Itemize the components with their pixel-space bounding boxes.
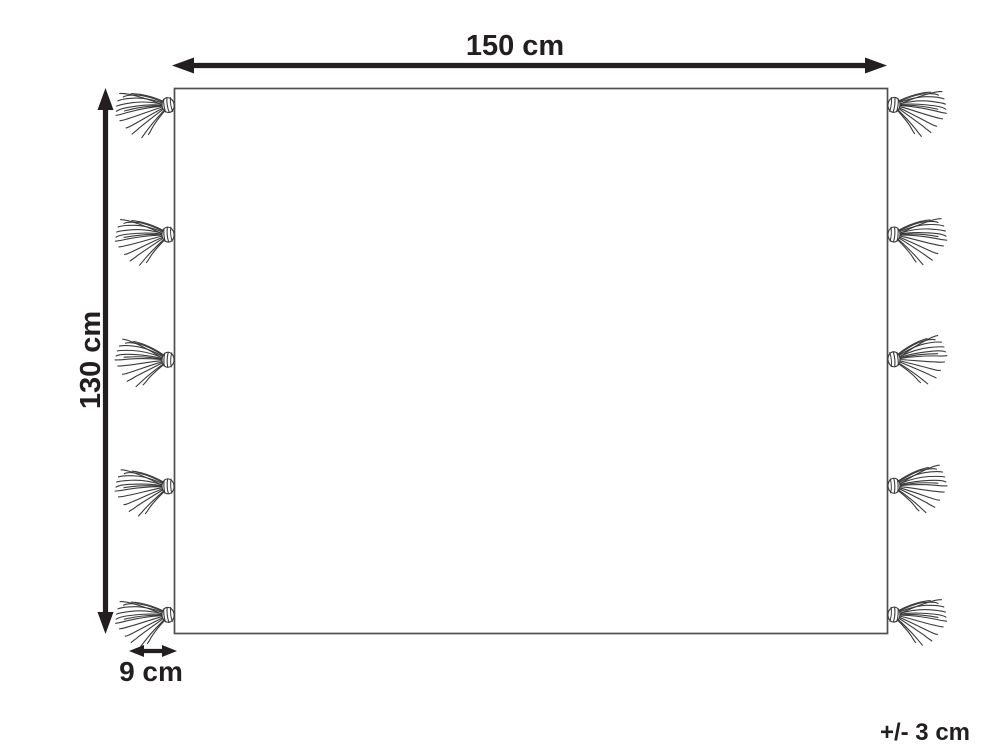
width-dimension-arrow: 150 cm (172, 30, 887, 74)
tassel-icon (885, 85, 949, 139)
tassel-icon (113, 85, 179, 141)
tolerance-label: +/- 3 cm (880, 719, 970, 746)
fringe-dimension-arrow: 9 cm (119, 645, 183, 687)
tassel-column-left (113, 85, 179, 649)
arrowhead-up-icon (98, 88, 114, 110)
arrowhead-right-icon (865, 58, 887, 74)
height-dimension-label: 130 cm (75, 311, 107, 409)
fringe-dimension-label: 9 cm (119, 656, 183, 687)
tassel-column-right (885, 85, 950, 647)
tassel-icon (114, 339, 175, 388)
tassel-icon (113, 595, 177, 649)
arrowhead-left-icon (172, 58, 194, 74)
tassel-icon (886, 595, 949, 647)
tassel-icon (886, 215, 948, 266)
arrowhead-down-icon (98, 612, 114, 634)
tassel-icon (887, 465, 948, 514)
tassel-icon (114, 467, 175, 517)
tassel-icon (886, 335, 950, 388)
rug-outline (175, 89, 888, 634)
diagram-canvas: 150 cm 130 cm 9 cm +/- 3 cm (0, 0, 1000, 750)
height-dimension-arrow: 130 cm (75, 88, 114, 634)
width-dimension-label: 150 cm (466, 30, 564, 62)
dimension-diagram: 150 cm 130 cm 9 cm +/- 3 cm (0, 0, 1000, 750)
tassel-icon (114, 215, 177, 267)
